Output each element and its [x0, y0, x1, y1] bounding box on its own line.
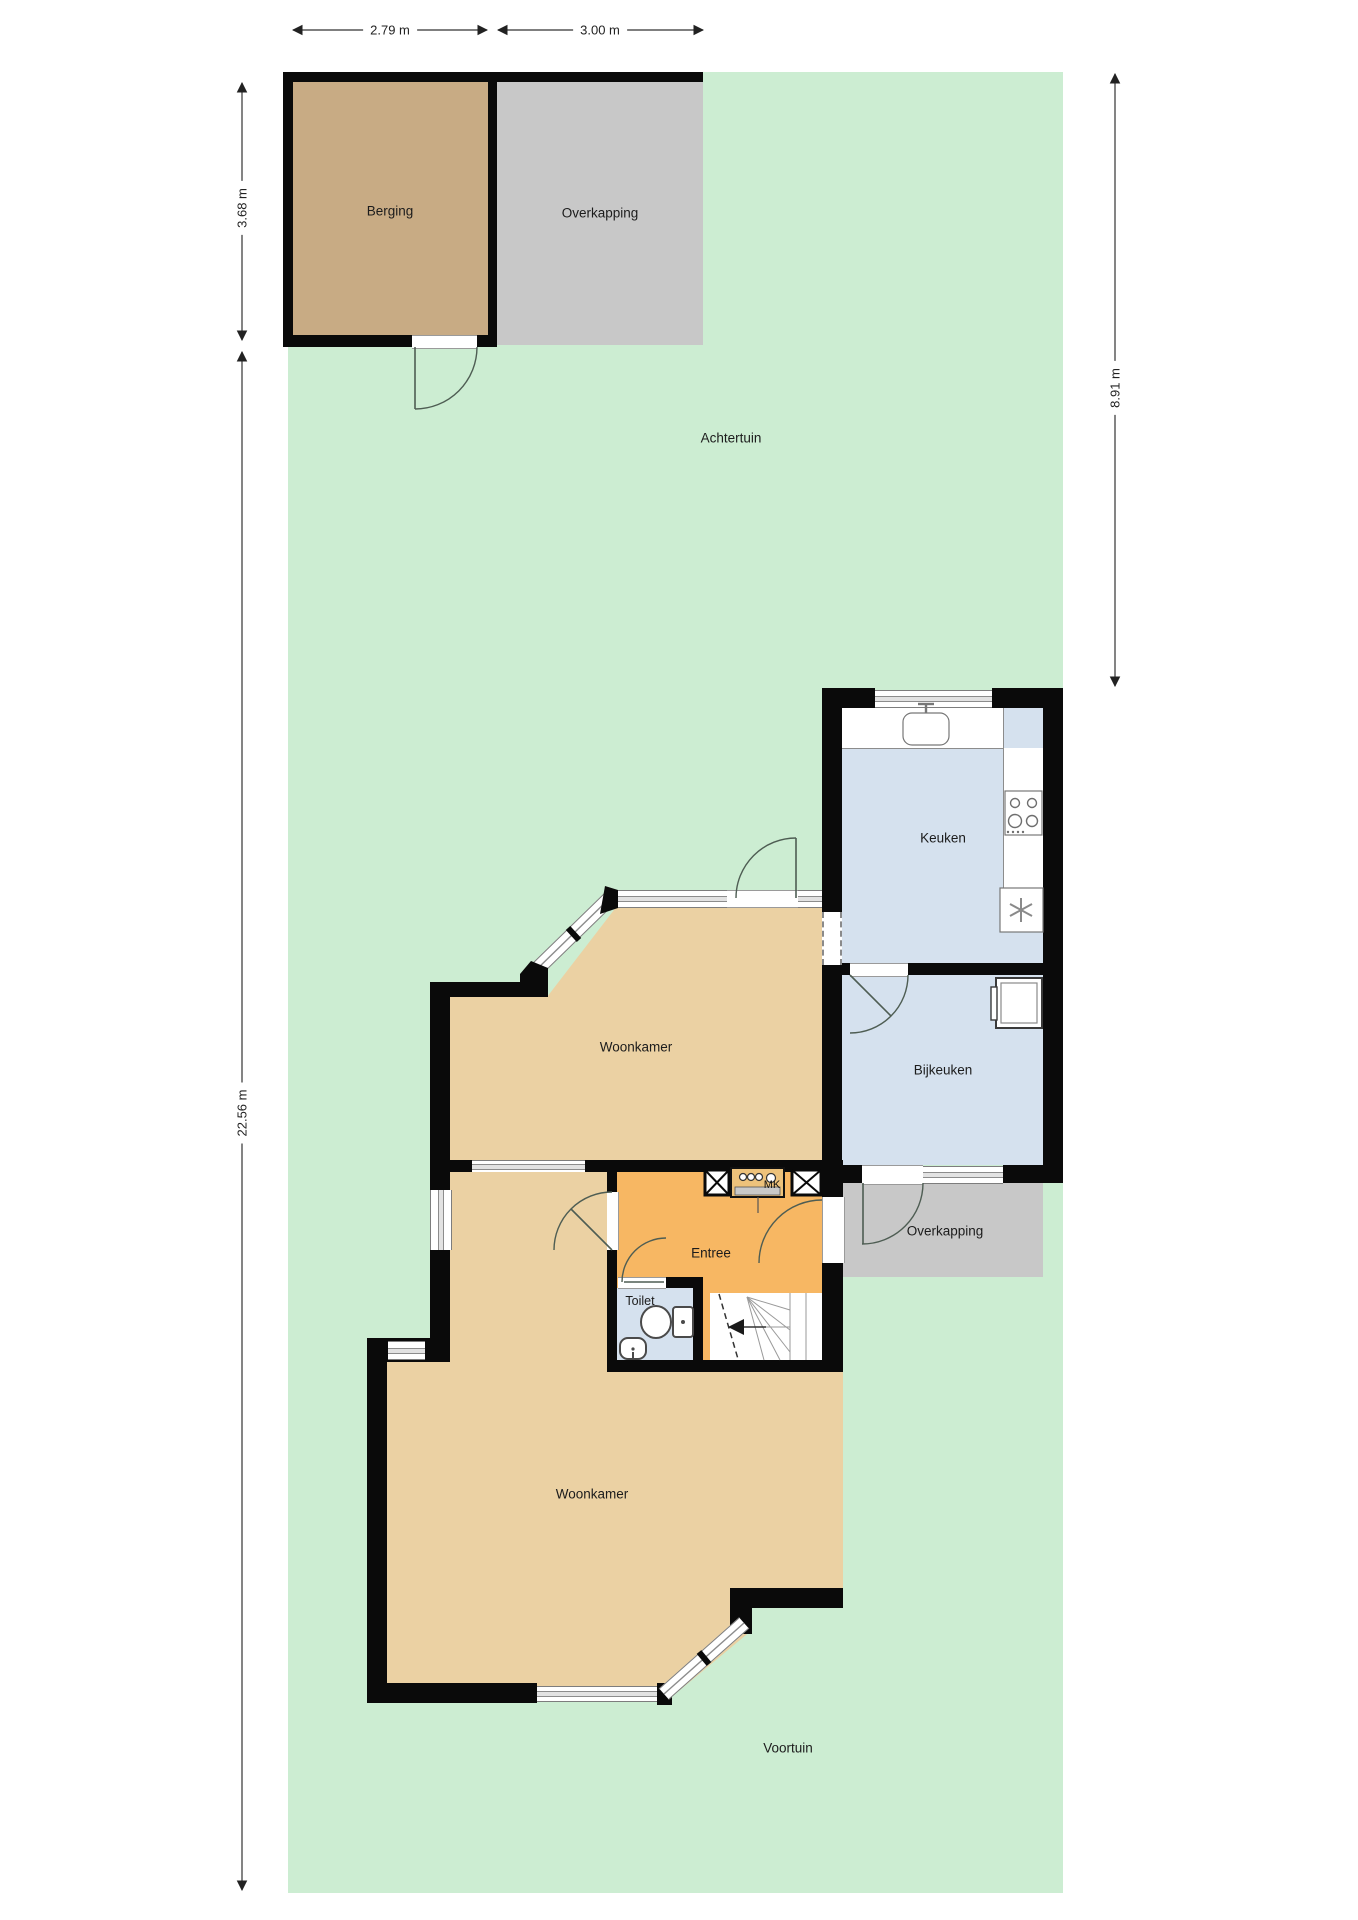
- wall: [1043, 688, 1063, 1183]
- backdoor-opening: [727, 890, 798, 908]
- wall: [657, 1683, 672, 1705]
- wall: [840, 1165, 862, 1183]
- keuken-window: [875, 690, 992, 708]
- bijkeuken-door-opening: [862, 1165, 923, 1185]
- room-label-bijkeuken: Bijkeuken: [914, 1063, 973, 1078]
- berging-door-opening: [412, 335, 477, 349]
- room-label-woonkamer-lower: Woonkamer: [556, 1487, 629, 1502]
- room-label-achtertuin: Achtertuin: [701, 431, 762, 446]
- wall: [822, 688, 875, 708]
- room-label-keuken: Keuken: [920, 831, 966, 846]
- wall: [283, 72, 703, 82]
- woonkamer-window-north: [617, 890, 727, 908]
- wall: [822, 1160, 843, 1197]
- keuken-passage-opening: [822, 912, 842, 965]
- wall: [367, 1362, 387, 1703]
- room-label-woonkamer-upper: Woonkamer: [600, 1040, 673, 1055]
- wall: [430, 1160, 472, 1172]
- wall: [1003, 1165, 1063, 1183]
- wall: [283, 82, 293, 347]
- woonkamer-door-opening: [605, 1192, 619, 1250]
- staircase-area: [710, 1293, 822, 1360]
- dimension-label-overkapping-width: 3.00 m: [573, 23, 627, 38]
- dimension-label-berging-width: 2.79 m: [363, 23, 417, 38]
- keuken-bijkeuken-door-opening: [850, 963, 908, 977]
- room-label-overkapping-shed: Overkapping: [562, 206, 639, 221]
- wall: [367, 1683, 537, 1703]
- dimension-label-achtertuin-depth: 8.91 m: [1108, 361, 1123, 415]
- dimension-label-berging-depth: 3.68 m: [235, 181, 250, 235]
- bijkeuken-window: [923, 1166, 1003, 1184]
- wall: [450, 982, 548, 997]
- room-label-entree: Entree: [691, 1246, 731, 1261]
- wall: [585, 1160, 822, 1172]
- wall: [605, 1360, 843, 1372]
- wall: [730, 1588, 752, 1634]
- wall: [477, 335, 497, 347]
- room-label-berging: Berging: [367, 204, 414, 219]
- room-label-voortuin: Voortuin: [763, 1741, 813, 1756]
- wall: [488, 82, 497, 335]
- room-label-toilet: Toilet: [625, 1294, 654, 1308]
- room-label-meterkast: MK: [764, 1179, 781, 1191]
- woonkamer-window-internal: [472, 1160, 585, 1174]
- woonkamer-window-north-small: [798, 890, 822, 908]
- toilet-door-opening: [618, 1277, 666, 1289]
- wall: [283, 335, 412, 347]
- woonkamer-window-step: [388, 1341, 425, 1360]
- dimension-label-plot-depth: 22.56 m: [235, 1083, 250, 1144]
- wall: [822, 965, 842, 1165]
- wall: [908, 963, 1043, 975]
- wall: [842, 963, 850, 975]
- wall: [430, 982, 450, 1160]
- kitchen-counter-top: [842, 708, 1004, 749]
- front-door-opening: [822, 1197, 845, 1263]
- woonkamer-window-south: [537, 1686, 657, 1702]
- room-label-overkapping-lower: Overkapping: [907, 1224, 984, 1239]
- wall: [693, 1277, 703, 1372]
- woonkamer-window-west: [430, 1190, 452, 1250]
- wall: [822, 708, 842, 912]
- floorplan-canvas: Berging Overkapping Achtertuin Keuken Wo…: [0, 0, 1358, 1920]
- kitchen-counter-right: [1003, 748, 1044, 891]
